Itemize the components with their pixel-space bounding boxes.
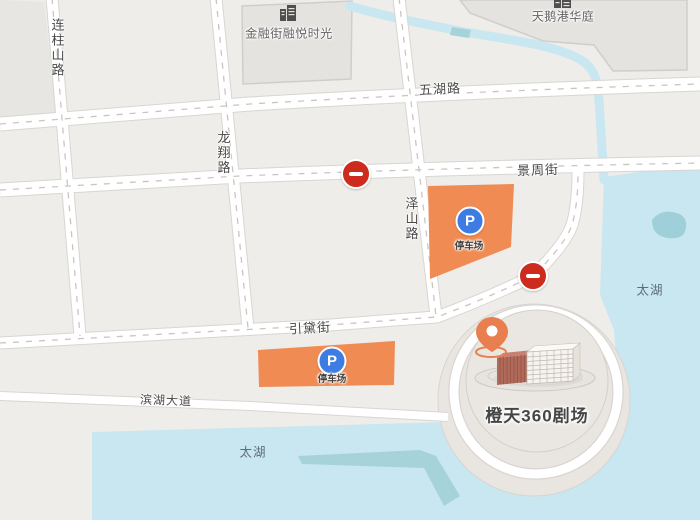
lake-label-south: 太湖	[239, 442, 266, 461]
road-label-yindai: 引黛街	[289, 316, 332, 337]
no-entry-icon	[341, 159, 371, 189]
no-entry-bar	[526, 274, 540, 278]
road-label-jingzhou: 景周街	[517, 159, 560, 179]
block-label-financial: 金融街融悦时光	[245, 25, 333, 42]
map-canvas[interactable]: 连柱山路 龙翔路 泽山路 五湖路 景周街 引黛街 滨湖大道 金融街融悦时光 天鹅…	[0, 0, 700, 520]
no-entry-bar	[349, 172, 363, 176]
no-entry-icon	[518, 261, 548, 291]
road-label-longxiang: 龙翔路	[214, 131, 233, 176]
road-label-binhu: 滨湖大道	[140, 391, 193, 410]
parking-icon-letter: P	[327, 353, 337, 370]
map-graphics	[0, 0, 700, 520]
parking-label-south: 停车场	[318, 371, 347, 385]
parking-icon-letter: P	[465, 213, 475, 230]
parking-label-north: 停车场	[455, 238, 484, 252]
block-financial-street	[242, 1, 352, 84]
lake-label-east: 太湖	[636, 280, 663, 299]
parking-icon[interactable]: P	[456, 207, 485, 236]
road-label-zeshan: 泽山路	[402, 197, 421, 242]
block-label-swan: 天鹅港华庭	[532, 8, 595, 25]
road-label-lianzhushan: 连柱山路	[48, 18, 67, 78]
theater-name-label: 橙天360剧场	[485, 402, 588, 427]
road-label-wuhu: 五湖路	[419, 77, 462, 98]
